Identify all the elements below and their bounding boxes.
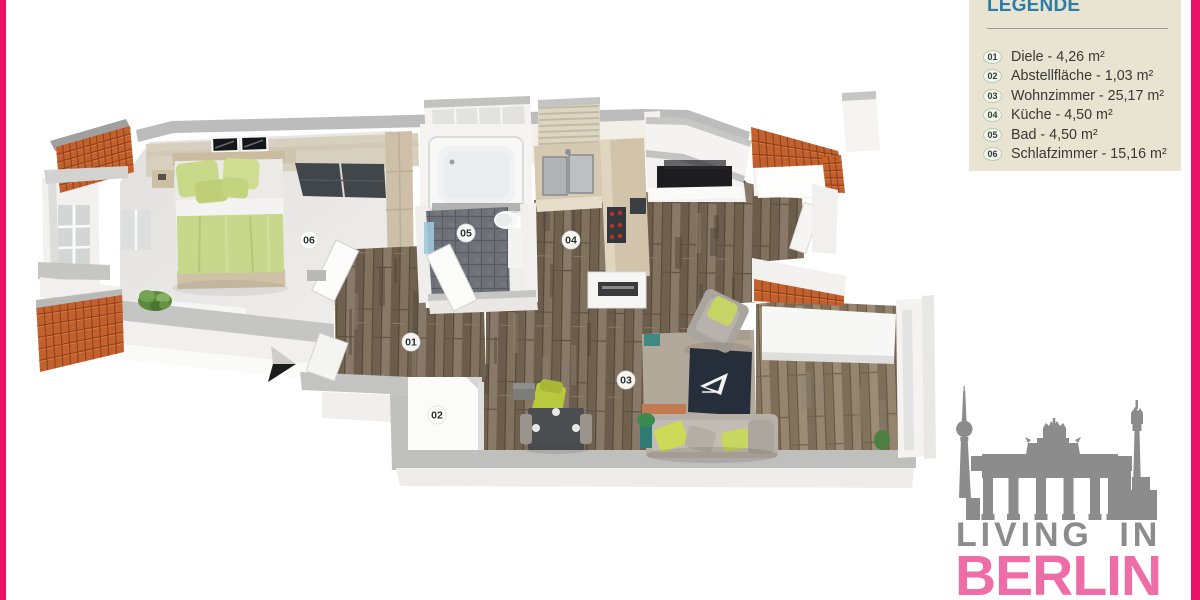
svg-text:06: 06: [303, 235, 315, 247]
svg-text:05: 05: [460, 228, 472, 240]
svg-text:01: 01: [405, 337, 417, 349]
svg-text:02: 02: [431, 410, 443, 422]
svg-text:03: 03: [620, 375, 632, 387]
svg-text:04: 04: [565, 235, 577, 247]
